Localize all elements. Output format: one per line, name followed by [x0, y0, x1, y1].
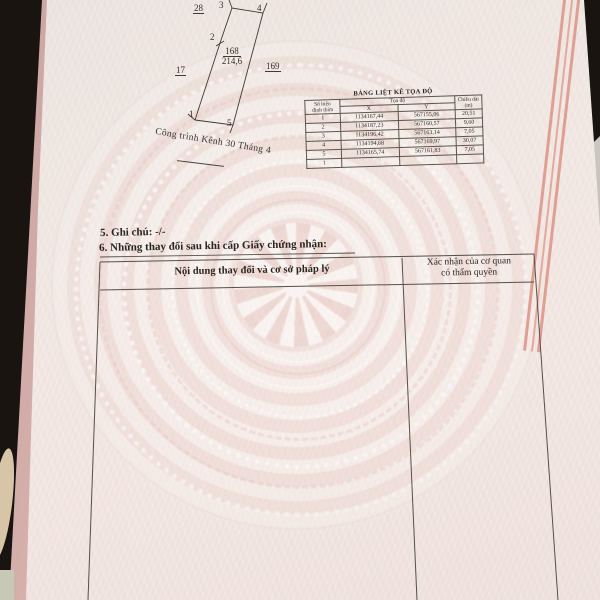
y-value — [399, 155, 457, 166]
vertex-id: 1 — [307, 158, 342, 168]
photo-of-certificate-page: 28 17 169 1 2 3 4 5 168 214,6 Công trình… — [0, 0, 600, 600]
adjacent-parcel-left-label: 17 — [175, 66, 186, 75]
col-vertex-header: Số hiệu đỉnh thửa — [305, 99, 340, 114]
section-5-note: 5. Ghi chú: -/- — [100, 227, 166, 240]
changes-table-column-divider — [402, 258, 417, 600]
vertex-label-3: 3 — [219, 1, 224, 10]
adjacent-parcel-top: 28 — [193, 3, 204, 14]
vertex-label-2: 2 — [210, 33, 215, 42]
adjacent-parcel-right: 169 — [265, 61, 281, 72]
changes-table-right-border — [534, 254, 558, 600]
adjacent-parcel-top-label: 28 — [193, 4, 204, 13]
adjacent-parcel-left: 17 — [175, 65, 186, 76]
col-length-header: Chiều dài (m) — [455, 95, 482, 110]
coordinate-table-grid: Số hiệu đỉnh thửa Tọa độ Chiều dài (m) X… — [304, 94, 484, 169]
ruled-linework — [0, 0, 600, 600]
changes-table-left-border — [88, 262, 100, 600]
changes-table-header-divider — [100, 282, 534, 290]
length-value — [457, 154, 484, 164]
adjacent-parcel-right-label: 169 — [265, 62, 281, 71]
parcel-number-area: 168 214,6 — [216, 47, 248, 67]
vertex-label-4: 4 — [257, 4, 262, 13]
vertex-label-5: 5 — [227, 119, 232, 128]
parcel-area: 214,6 — [222, 56, 242, 66]
coordinate-table: BẢNG LIỆT KÊ TỌA ĐỘ Số hiệu đỉnh thửa Tọ… — [304, 86, 484, 169]
x-value — [342, 157, 400, 168]
changes-confirmation-column-header: Xác nhận của cơ quan có thẩm quyền — [404, 256, 534, 280]
vertex-label-1: 1 — [189, 110, 194, 119]
